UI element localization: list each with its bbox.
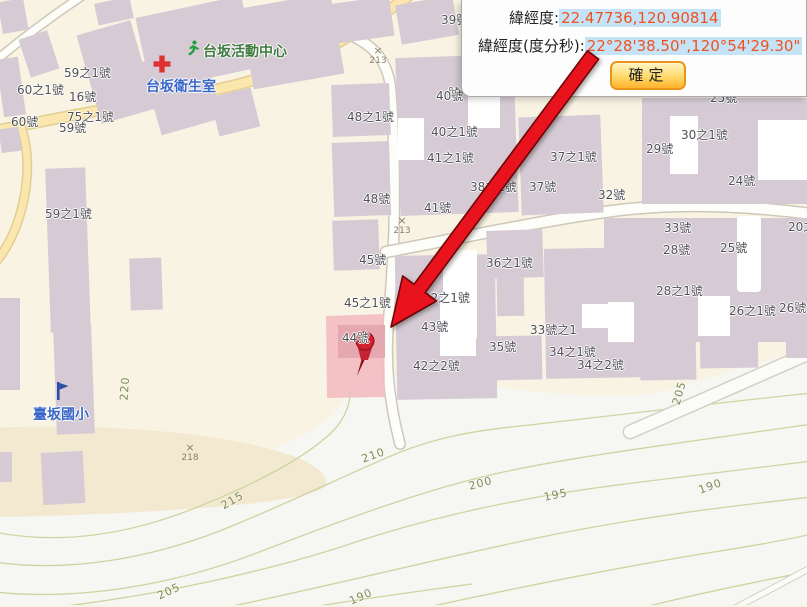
- confirm-button[interactable]: 確定: [610, 61, 686, 90]
- coord-decimal-label: 緯經度:: [509, 9, 559, 27]
- coord-dms-value: 22°28'38.50",120°54'29.30": [585, 37, 803, 55]
- coordinate-popup: 緯經度:22.47736,120.90814 緯經度(度分秒):22°28'38…: [461, 0, 807, 97]
- highlighted-parcel[interactable]: [326, 314, 385, 398]
- coordinate-row-decimal: 緯經度:22.47736,120.90814: [509, 7, 721, 28]
- coord-decimal-value: 22.47736,120.90814: [559, 9, 720, 27]
- coord-dms-label: 緯經度(度分秒):: [478, 37, 585, 55]
- coordinate-row-dms: 緯經度(度分秒):22°28'38.50",120°54'29.30": [478, 35, 802, 56]
